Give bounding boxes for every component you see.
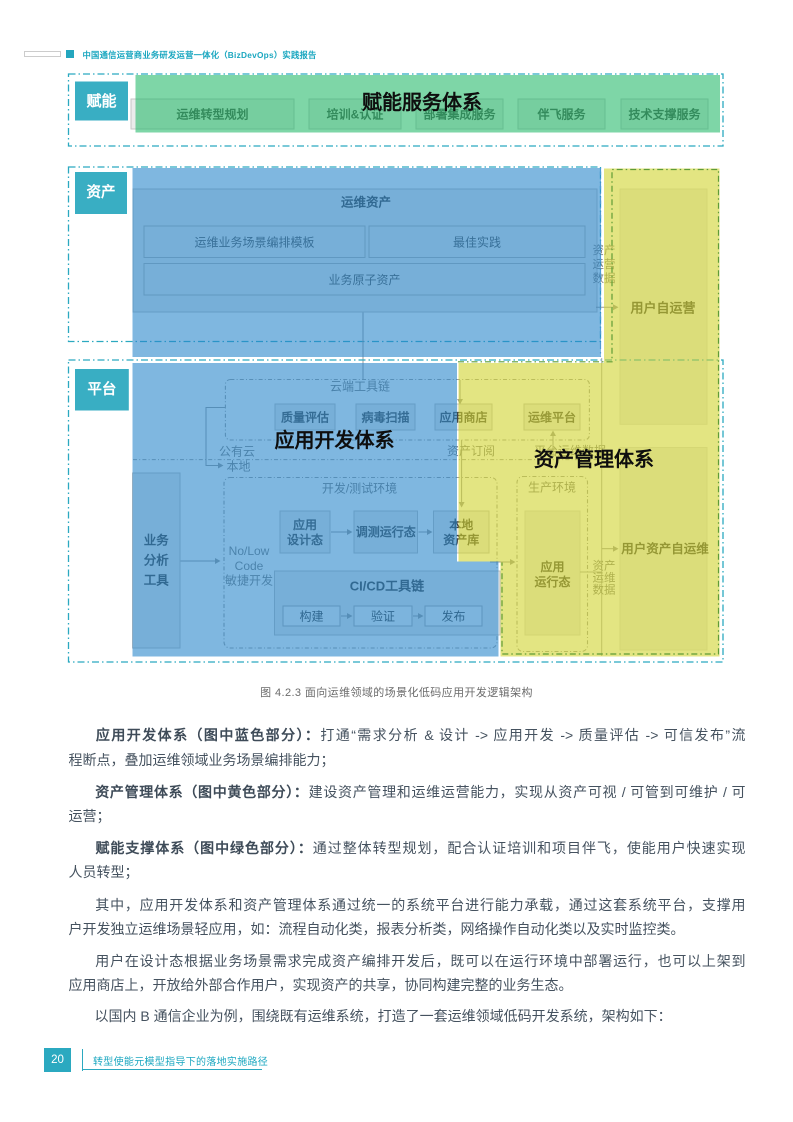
svg-text:赋能: 赋能 xyxy=(86,92,116,110)
svg-text:赋能服务体系: 赋能服务体系 xyxy=(362,90,482,114)
svg-text:资产管理体系: 资产管理体系 xyxy=(534,447,654,471)
svg-text:资产: 资产 xyxy=(87,183,116,201)
svg-text:应用开发体系: 应用开发体系 xyxy=(275,428,395,452)
svg-text:平台: 平台 xyxy=(87,380,116,398)
